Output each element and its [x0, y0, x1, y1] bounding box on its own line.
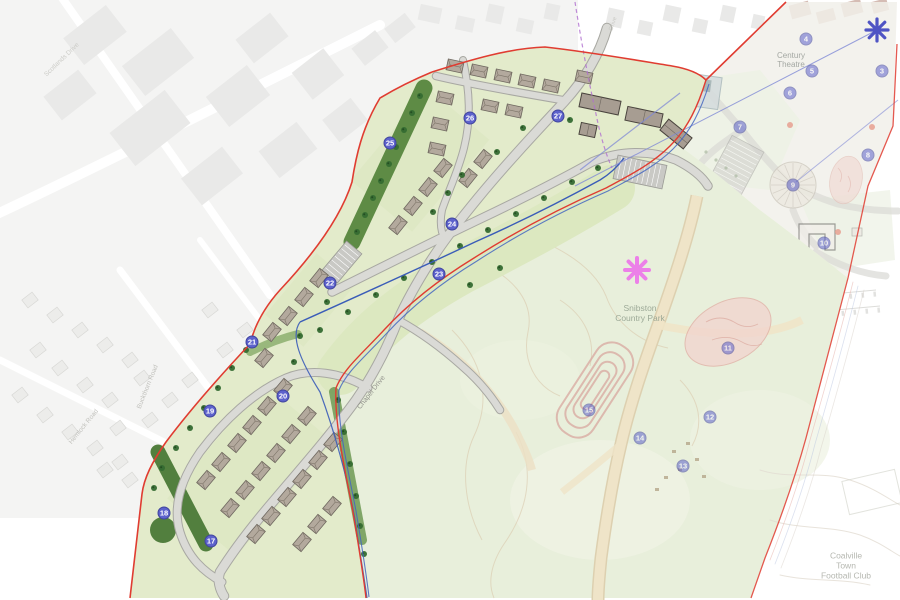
map-marker-10[interactable]: 10	[818, 237, 831, 250]
map-marker-23[interactable]: 23	[433, 268, 446, 281]
coalville-town-football-club-label: Coalville Town Football Club	[819, 551, 873, 580]
map-marker-27[interactable]: 27	[552, 110, 565, 123]
map-marker-18[interactable]: 18	[158, 507, 171, 520]
snibston-country-park-label: Snibston Country Park	[615, 304, 665, 324]
map-marker-17[interactable]: 17	[205, 535, 218, 548]
street-name-top-label: Drive	[609, 16, 620, 31]
annotation-overlay: 3456789101112131415171819202122232425262…	[0, 0, 900, 600]
site-plan-canvas: 3456789101112131415171819202122232425262…	[0, 0, 900, 600]
map-marker-19[interactable]: 19	[204, 405, 217, 418]
map-marker-21[interactable]: 21	[246, 336, 259, 349]
map-marker-3[interactable]: 3	[876, 65, 889, 78]
buckthorn-road-label: Buckthorn Road	[136, 364, 160, 410]
map-marker-9[interactable]: 9	[787, 179, 800, 192]
map-marker-8[interactable]: 8	[862, 149, 875, 162]
map-marker-20[interactable]: 20	[277, 390, 290, 403]
map-marker-4[interactable]: 4	[800, 33, 813, 46]
map-marker-25[interactable]: 25	[384, 137, 397, 150]
map-marker-5[interactable]: 5	[806, 65, 819, 78]
map-marker-14[interactable]: 14	[634, 432, 647, 445]
map-marker-13[interactable]: 13	[677, 460, 690, 473]
century-theatre-label: Century Theatre	[777, 51, 805, 69]
map-marker-22[interactable]: 22	[324, 277, 337, 290]
map-marker-26[interactable]: 26	[464, 112, 477, 125]
scotlands-drive-label: Scotlands Drive	[43, 41, 81, 78]
map-marker-7[interactable]: 7	[734, 121, 747, 134]
map-marker-15[interactable]: 15	[583, 404, 596, 417]
map-marker-12[interactable]: 12	[704, 411, 717, 424]
map-marker-11[interactable]: 11	[722, 342, 735, 355]
hemlock-road-label: Hemlock Road	[68, 408, 101, 446]
chapel-drive-label: Chapel Drive	[356, 375, 387, 412]
map-marker-6[interactable]: 6	[784, 87, 797, 100]
map-marker-24[interactable]: 24	[446, 218, 459, 231]
